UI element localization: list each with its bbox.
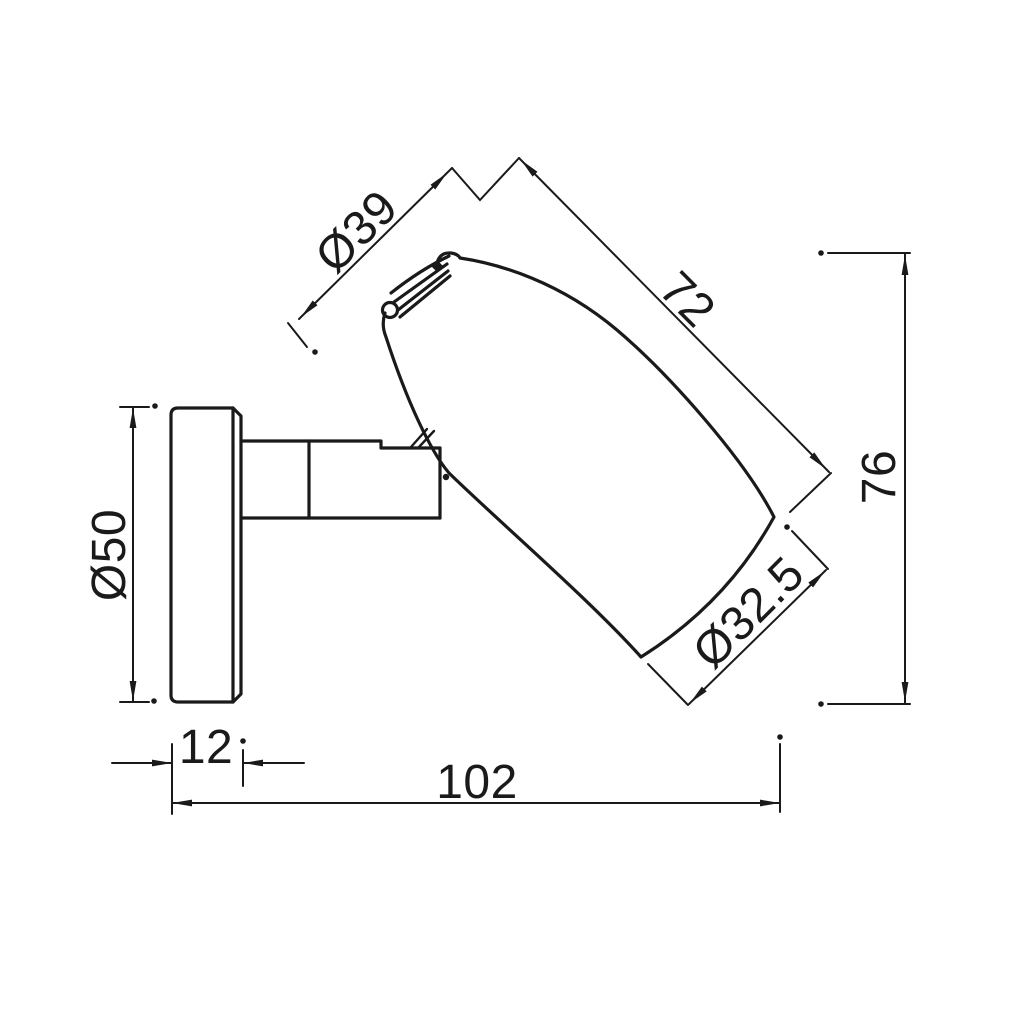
dimension-label-head-length: 72	[649, 262, 725, 338]
dimension-label-face-diameter: Ø32.5	[683, 547, 815, 679]
dimension-overall-length: 102	[172, 734, 783, 812]
extension-break-zigzag	[452, 158, 519, 200]
arrowhead	[521, 160, 538, 177]
reference-dot	[312, 349, 318, 355]
arrowhead	[902, 682, 909, 702]
dimension-head-length: 72	[519, 158, 831, 512]
base-plate-outline	[171, 408, 241, 702]
reference-dot	[240, 738, 246, 744]
reference-dot	[818, 250, 824, 256]
dimension-base-thickness: 12	[112, 721, 304, 814]
reference-dot	[152, 403, 158, 409]
extension-line	[288, 323, 307, 347]
dimension-label-overall-height: 76	[853, 450, 906, 504]
drawing-sheet: Ø50 76 Ø39 72 Ø32.5	[0, 0, 1024, 1024]
knuckle-seam-line	[398, 271, 448, 310]
dimension-neck-diameter: Ø39	[288, 158, 519, 355]
dimension-label-base-thickness: 12	[179, 721, 233, 774]
arrowhead	[130, 681, 137, 701]
lamp-head-body	[383, 253, 774, 657]
dimension-base-diameter: Ø50	[83, 403, 158, 704]
arrowhead	[690, 687, 707, 703]
arrowhead	[243, 760, 263, 767]
dimension-face-diameter: Ø32.5	[648, 524, 828, 705]
knuckle-end-cap	[383, 303, 398, 318]
arrowhead	[152, 760, 172, 767]
extension-line	[790, 473, 831, 512]
hatch-mark	[411, 429, 427, 447]
arrowhead	[902, 255, 909, 275]
dimension-label-overall-length: 102	[436, 756, 518, 809]
pivot-dot	[443, 474, 449, 480]
knuckle-top-edge	[391, 256, 449, 293]
arrowhead	[760, 800, 780, 807]
extension-line	[648, 664, 688, 705]
extension-line	[792, 531, 828, 569]
arrowhead	[172, 800, 192, 807]
dimension-label-neck-diameter: Ø39	[306, 181, 409, 284]
technical-drawing: Ø50 76 Ø39 72 Ø32.5	[0, 0, 1024, 1024]
reference-dot	[777, 734, 783, 740]
reference-dot	[151, 698, 157, 704]
arrowhead	[810, 452, 827, 469]
reference-dot	[784, 524, 790, 530]
arrowhead	[431, 173, 448, 190]
arrowhead	[130, 408, 137, 428]
joint-pin	[431, 260, 443, 272]
dimension-overall-height: 76	[818, 250, 910, 707]
arrowhead	[301, 301, 318, 318]
reference-dot	[818, 701, 824, 707]
dimension-label-base-diameter: Ø50	[83, 509, 136, 601]
